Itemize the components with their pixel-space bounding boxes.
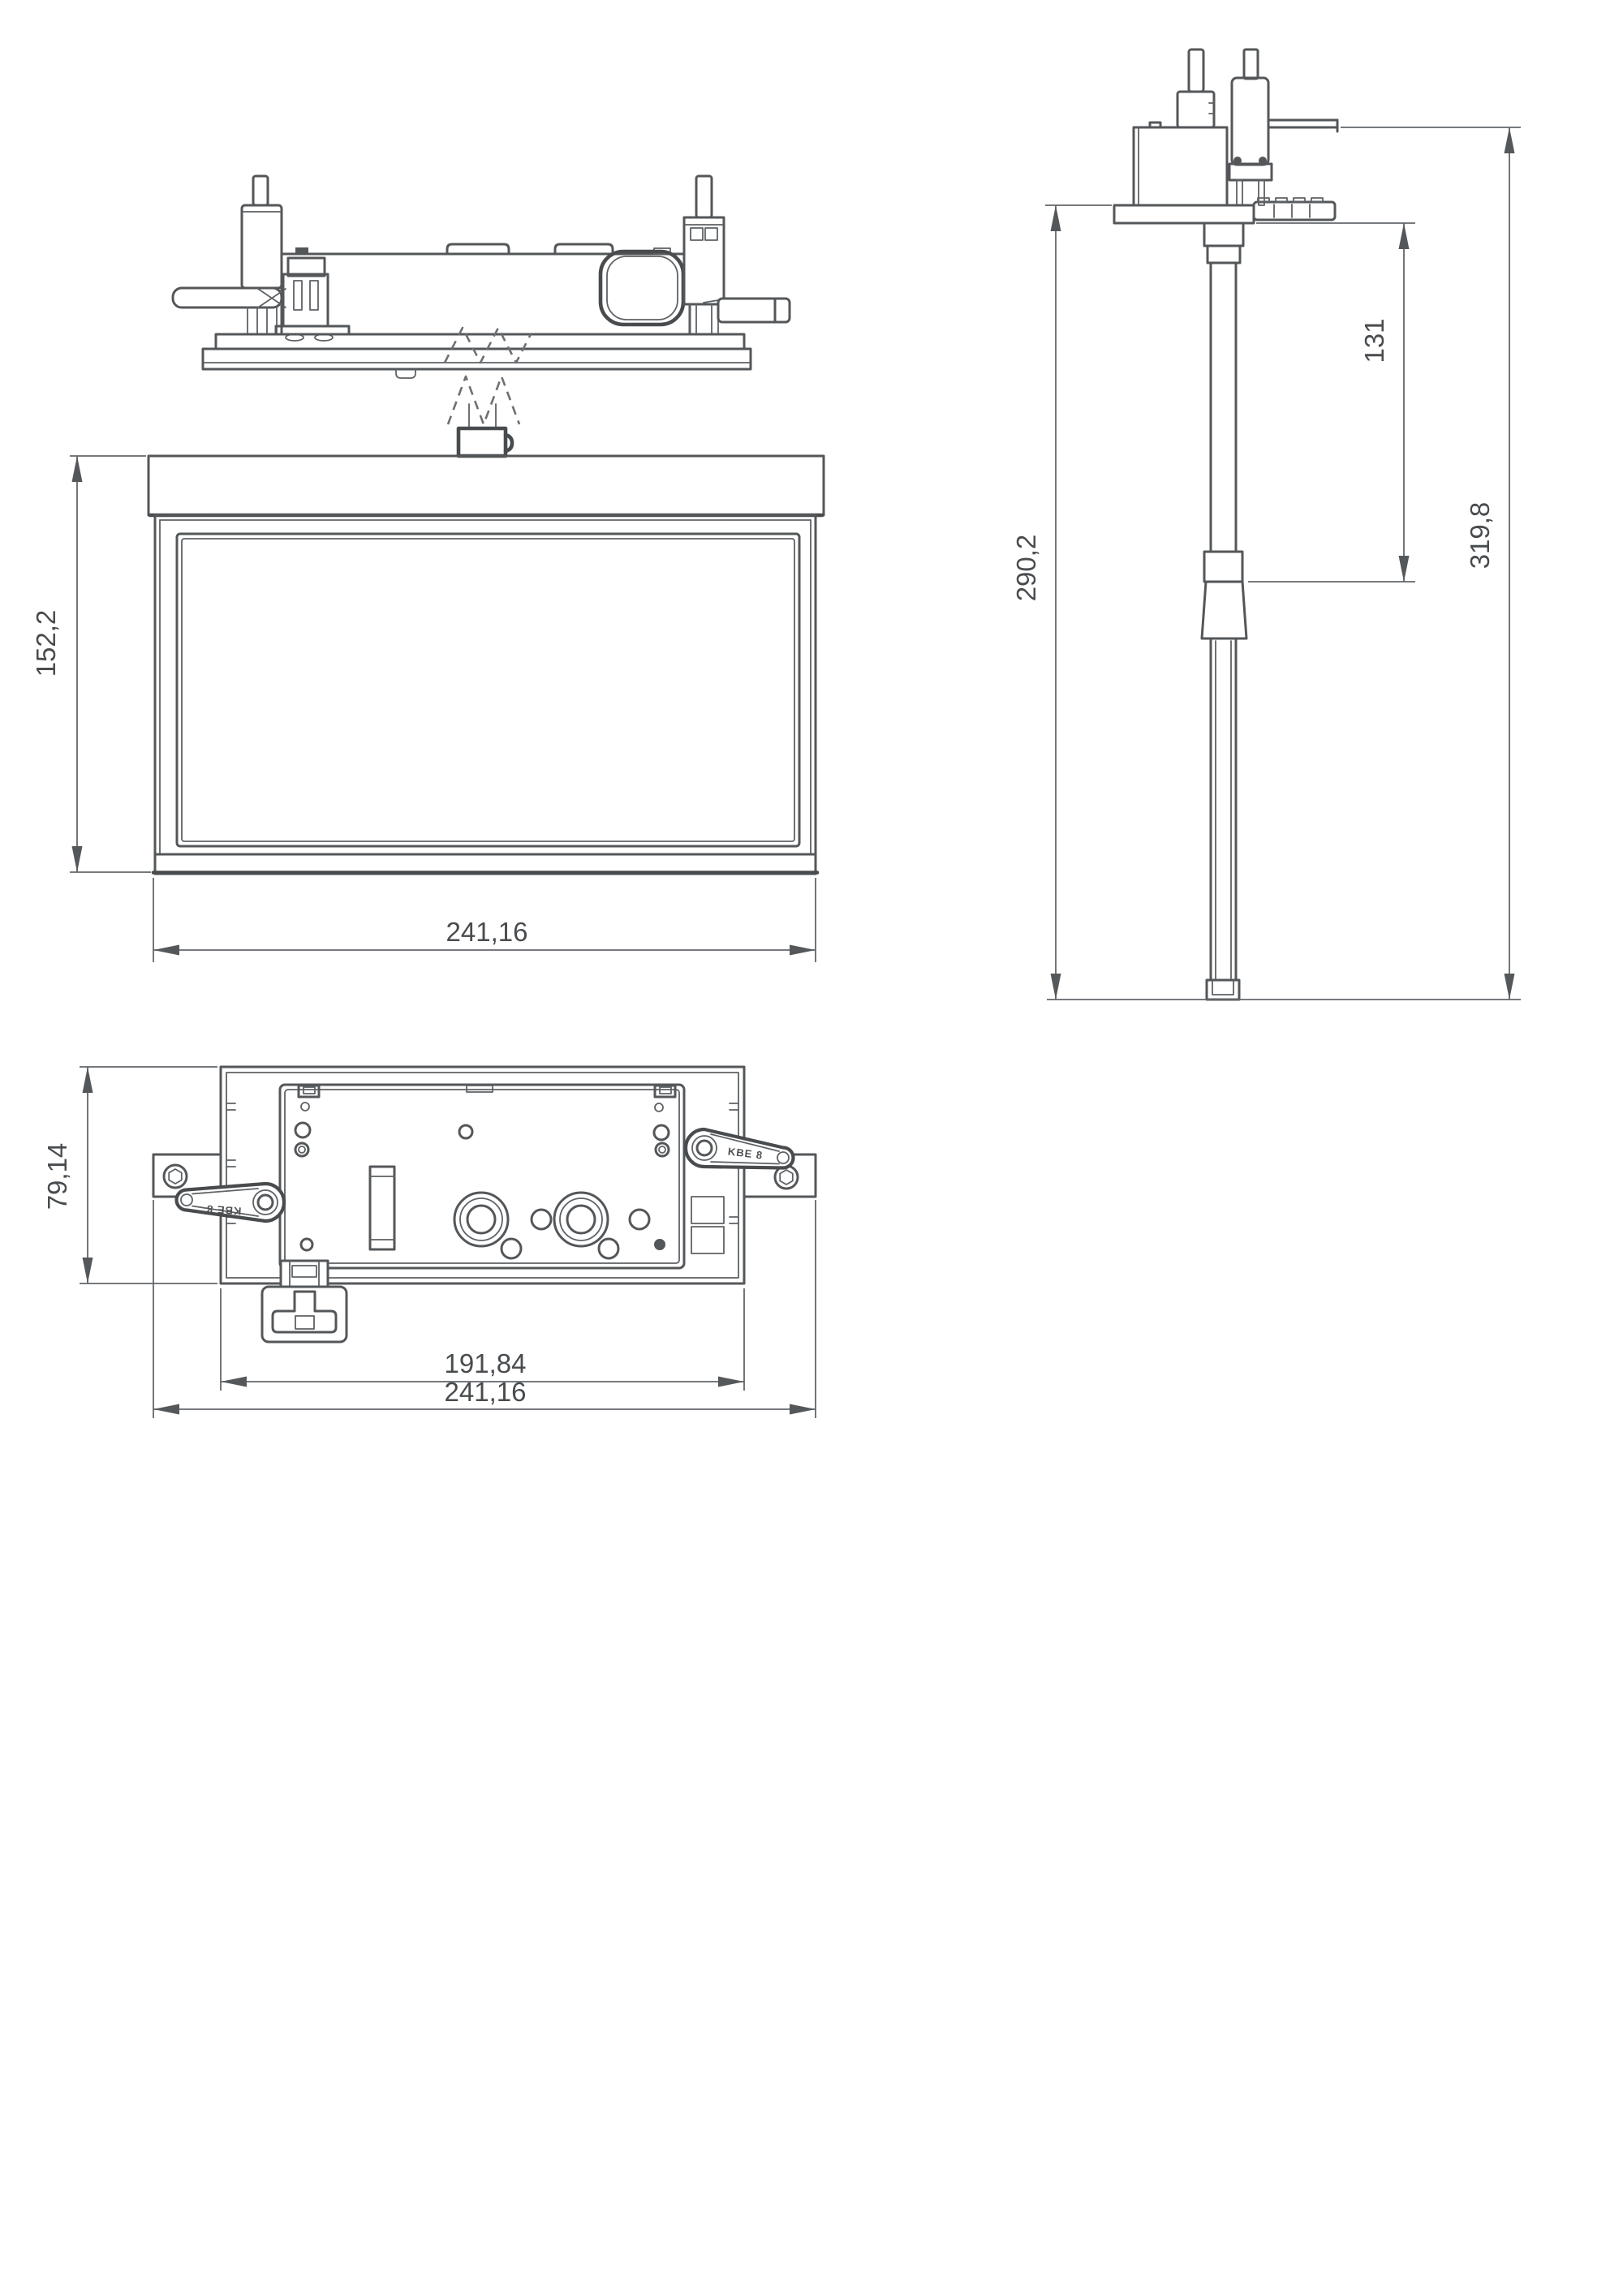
top-overall-width-label: 241,16: [445, 1377, 527, 1407]
dimension-total-height: 319,8: [1047, 127, 1521, 1000]
left-plunger-body: [242, 205, 282, 288]
right-arm-side: [718, 299, 790, 322]
right-swing-arm: KBE 8: [686, 1129, 793, 1168]
gear-tray: [280, 1085, 724, 1268]
side-gear-unit: [1114, 49, 1337, 223]
ceiling-bezel: [203, 349, 751, 369]
top-body-width-label: 191,84: [445, 1348, 527, 1378]
suspension-rod: [1202, 223, 1246, 1000]
upper-tube-label: 131: [1359, 318, 1389, 363]
drawing-canvas: 152,2 241,16: [0, 0, 1623, 2296]
suspension-stub: [458, 428, 506, 456]
rod-coupler-upper: [1204, 223, 1243, 246]
front-view: 152,2 241,16: [31, 176, 824, 962]
right-plunger-pin: [696, 176, 712, 217]
left-arm-side: [173, 288, 282, 307]
top-tab: [555, 244, 613, 254]
spring-body-side: [1232, 78, 1268, 165]
side-view: 290,2 131 319,8: [1011, 49, 1521, 1000]
break-symbol: [445, 328, 531, 428]
front-height-label: 152,2: [31, 610, 61, 677]
gear-body-side: [1134, 127, 1227, 205]
dimension-suspension-length: 290,2: [1011, 205, 1112, 1000]
suspension-length-label: 290,2: [1011, 535, 1041, 602]
recessed-unit: [173, 176, 790, 378]
top-boss: [1150, 123, 1160, 127]
dimension-upper-tube: 131: [1248, 223, 1415, 582]
dimension-front-width: 241,16: [153, 878, 816, 962]
rod-upper: [1211, 263, 1236, 552]
top-tab: [447, 244, 509, 254]
housing-frame: [221, 1067, 744, 1283]
panel-cap: [149, 456, 824, 515]
cable-gland-left: [454, 1193, 508, 1246]
spring-pin-side: [1244, 49, 1258, 79]
total-height-label: 319,8: [1465, 502, 1495, 570]
latch-plate: [262, 1287, 347, 1342]
left-swing-arm: KBE 8: [177, 1184, 285, 1221]
frame-outer: [221, 1067, 744, 1283]
luminaire-panel: [149, 456, 824, 874]
top-view: KBE 8 KBE 8 79,14 191,84: [42, 1067, 816, 1418]
left-arm-marking: KBE 8: [206, 1202, 242, 1217]
dimension-top-depth: 79,14: [42, 1067, 217, 1283]
spring-collar: [1229, 164, 1272, 180]
terminal-block: [283, 274, 328, 326]
latch-clamp: [262, 1261, 347, 1342]
rod-end-cap: [1207, 980, 1239, 1000]
tray-notch: [467, 1086, 493, 1092]
rod-joint-ring: [1204, 552, 1242, 582]
diffuser: [182, 539, 794, 841]
arm-end-top: [1268, 120, 1337, 127]
flange-plate: [216, 334, 744, 349]
top-depth-label: 79,14: [42, 1143, 72, 1210]
plunger-pin-side: [1189, 49, 1203, 92]
dimension-front-height: 152,2: [31, 456, 151, 872]
screw-head: [295, 247, 308, 254]
panel-body: [155, 515, 816, 874]
front-width-label: 241,16: [446, 917, 528, 947]
rod-lower: [1211, 638, 1236, 980]
arm-end-flange: [1254, 198, 1335, 220]
plunger-block-side: [1177, 92, 1214, 127]
bezel-clip: [396, 369, 415, 378]
diffuser-frame: [177, 534, 799, 846]
technical-drawing-page: 152,2 241,16: [0, 0, 1623, 2296]
gear-body: [282, 254, 690, 334]
cable-gland-right: [554, 1193, 608, 1246]
tray-slot: [370, 1167, 394, 1249]
rod-coupler-lower: [1208, 246, 1240, 263]
flange-side: [1114, 205, 1254, 223]
left-plunger-pin: [253, 176, 268, 205]
rod-joint-cone: [1202, 582, 1246, 638]
